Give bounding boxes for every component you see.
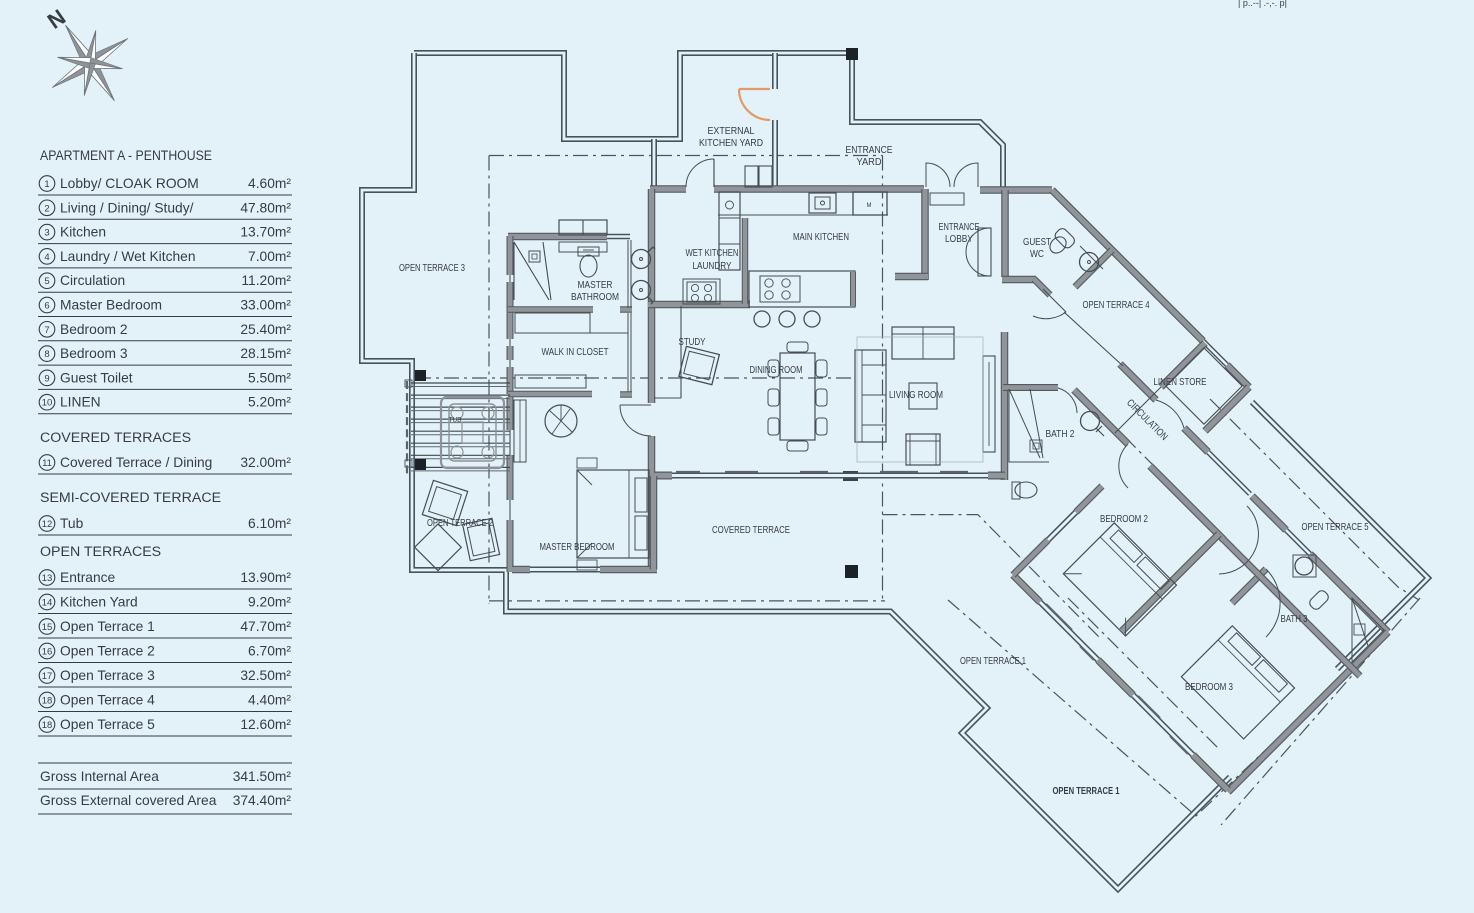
- svg-text:YARD: YARD: [857, 157, 882, 168]
- svg-text:N: N: [43, 4, 70, 34]
- svg-text:14: 14: [42, 598, 53, 609]
- svg-text:Open Terrace 4: Open Terrace 4: [60, 693, 155, 708]
- svg-text:DINING ROOM: DINING ROOM: [750, 365, 803, 376]
- svg-text:16: 16: [42, 647, 53, 658]
- svg-text:STUDY: STUDY: [679, 337, 706, 348]
- svg-text:CIRCULATION: CIRCULATION: [1124, 398, 1169, 443]
- svg-text:28.15m²: 28.15m²: [240, 346, 291, 361]
- svg-text:BEDROOM 2: BEDROOM 2: [1100, 514, 1148, 525]
- svg-text:COVERED TERRACES: COVERED TERRACES: [40, 430, 191, 446]
- svg-text:1: 1: [44, 179, 49, 190]
- svg-text:17: 17: [42, 671, 53, 682]
- svg-text:LINEN STORE: LINEN STORE: [1154, 377, 1207, 388]
- svg-text:5.20m²: 5.20m²: [248, 395, 291, 410]
- svg-text:GUEST: GUEST: [1023, 237, 1051, 248]
- svg-text:BATH 2: BATH 2: [1046, 429, 1075, 440]
- svg-text:BATH 3: BATH 3: [1281, 614, 1308, 625]
- svg-text:Entrance: Entrance: [60, 570, 116, 585]
- svg-text:Covered Terrace / Dining: Covered Terrace / Dining: [60, 455, 212, 470]
- svg-text:WET KITCHEN: WET KITCHEN: [686, 248, 739, 259]
- svg-text:OPEN TERRACE 3: OPEN TERRACE 3: [399, 263, 465, 274]
- svg-text:SEMI-COVERED TERRACE: SEMI-COVERED TERRACE: [40, 490, 221, 506]
- svg-text:10: 10: [42, 398, 53, 409]
- svg-text:12.60m²: 12.60m²: [240, 717, 291, 732]
- svg-text:Kitchen: Kitchen: [60, 225, 106, 240]
- svg-text:5.50m²: 5.50m²: [248, 370, 291, 385]
- svg-text:7: 7: [44, 325, 49, 336]
- svg-text:Living / Dining/ Study/: Living / Dining/ Study/: [60, 200, 194, 215]
- svg-text:Circulation: Circulation: [60, 273, 125, 288]
- svg-text:Master Bedroom: Master Bedroom: [60, 298, 162, 313]
- svg-text:47.80m²: 47.80m²: [240, 200, 291, 215]
- svg-text:MASTER BEDROOM: MASTER BEDROOM: [540, 542, 615, 553]
- svg-text:13.90m²: 13.90m²: [240, 570, 291, 585]
- svg-text:15: 15: [42, 622, 53, 633]
- svg-text:Gross Internal Area: Gross Internal Area: [40, 769, 159, 784]
- svg-text:LINEN: LINEN: [60, 395, 101, 410]
- svg-text:Open Terrace 3: Open Terrace 3: [60, 668, 155, 683]
- svg-text:OPEN TERRACES: OPEN TERRACES: [40, 544, 161, 560]
- svg-text:6.10m²: 6.10m²: [248, 516, 291, 531]
- svg-text:32.50m²: 32.50m²: [240, 668, 291, 683]
- svg-text:OPEN TERRACE 1: OPEN TERRACE 1: [960, 656, 1026, 667]
- svg-text:EXTERNAL: EXTERNAL: [708, 126, 755, 137]
- svg-text:12: 12: [42, 519, 53, 530]
- svg-text:OPEN TERRACE 4: OPEN TERRACE 4: [1083, 300, 1150, 311]
- svg-text:M: M: [867, 203, 872, 209]
- svg-text:OPEN TERRACE 5: OPEN TERRACE 5: [1302, 522, 1369, 533]
- svg-text:33.00m²: 33.00m²: [240, 298, 291, 313]
- svg-text:6.70m²: 6.70m²: [248, 644, 291, 659]
- svg-text:ENTRANCE: ENTRANCE: [846, 145, 893, 156]
- svg-text:9.20m²: 9.20m²: [248, 595, 291, 610]
- svg-text:Open Terrace 2: Open Terrace 2: [60, 644, 155, 659]
- svg-text:BEDROOM 3: BEDROOM 3: [1185, 682, 1233, 693]
- svg-text:Open Terrace 1: Open Terrace 1: [60, 619, 155, 634]
- svg-text:8: 8: [44, 349, 49, 360]
- svg-text:13.70m²: 13.70m²: [240, 225, 291, 240]
- svg-text:OPEN TERRACE 1: OPEN TERRACE 1: [1053, 786, 1120, 797]
- svg-text:LAUNDRY: LAUNDRY: [693, 261, 732, 272]
- svg-text:Tub: Tub: [60, 516, 84, 531]
- svg-text:374.40m²: 374.40m²: [233, 793, 292, 808]
- svg-text:341.50m²: 341.50m²: [233, 769, 292, 784]
- svg-text:3: 3: [44, 228, 49, 239]
- svg-text:APARTMENT A - PENTHOUSE: APARTMENT A - PENTHOUSE: [40, 148, 212, 164]
- svg-text:4.60m²: 4.60m²: [248, 176, 291, 191]
- svg-text:Bedroom 2: Bedroom 2: [60, 322, 128, 337]
- svg-text:ENTRANCE: ENTRANCE: [939, 222, 980, 233]
- svg-text:LOBBY: LOBBY: [945, 234, 973, 245]
- svg-text:COVERED TERRACE: COVERED TERRACE: [712, 525, 790, 536]
- svg-text:| p..--| .-,-. p|: | p..--| .-,-. p|: [1238, 0, 1287, 8]
- svg-text:TUB: TUB: [449, 417, 462, 424]
- svg-text:2: 2: [44, 203, 49, 214]
- svg-text:13: 13: [42, 573, 53, 584]
- svg-text:MASTER: MASTER: [578, 280, 613, 291]
- svg-text:6: 6: [44, 301, 49, 312]
- svg-text:Kitchen Yard: Kitchen Yard: [60, 595, 138, 610]
- svg-text:Bedroom 3: Bedroom 3: [60, 346, 128, 361]
- svg-text:18: 18: [42, 696, 53, 707]
- svg-text:7.00m²: 7.00m²: [248, 249, 291, 264]
- svg-text:OPEN TERRACE 2: OPEN TERRACE 2: [427, 518, 493, 529]
- svg-text:25.40m²: 25.40m²: [240, 322, 291, 337]
- svg-text:Open Terrace 5: Open Terrace 5: [60, 717, 155, 732]
- svg-text:WC: WC: [1030, 249, 1044, 260]
- svg-text:BATHROOM: BATHROOM: [571, 292, 619, 303]
- svg-text:18: 18: [42, 720, 53, 731]
- svg-text:Laundry / Wet Kitchen: Laundry / Wet Kitchen: [60, 249, 196, 264]
- svg-text:9: 9: [44, 373, 49, 384]
- svg-text:32.00m²: 32.00m²: [240, 455, 291, 470]
- svg-text:47.70m²: 47.70m²: [240, 619, 291, 634]
- svg-text:11: 11: [42, 458, 52, 469]
- svg-text:11.20m²: 11.20m²: [241, 273, 291, 288]
- svg-text:Gross External covered Area: Gross External covered Area: [40, 793, 217, 808]
- svg-text:LIVING ROOM: LIVING ROOM: [889, 390, 943, 401]
- svg-text:Guest Toilet: Guest Toilet: [60, 370, 133, 385]
- svg-text:4: 4: [44, 252, 49, 263]
- svg-text:MAIN KITCHEN: MAIN KITCHEN: [793, 232, 849, 243]
- svg-text:WALK IN CLOSET: WALK IN CLOSET: [542, 347, 609, 358]
- svg-text:5: 5: [44, 276, 49, 287]
- svg-text:KITCHEN YARD: KITCHEN YARD: [699, 138, 763, 149]
- svg-text:4.40m²: 4.40m²: [248, 693, 291, 708]
- svg-text:Lobby/ CLOAK ROOM: Lobby/ CLOAK ROOM: [60, 176, 199, 191]
